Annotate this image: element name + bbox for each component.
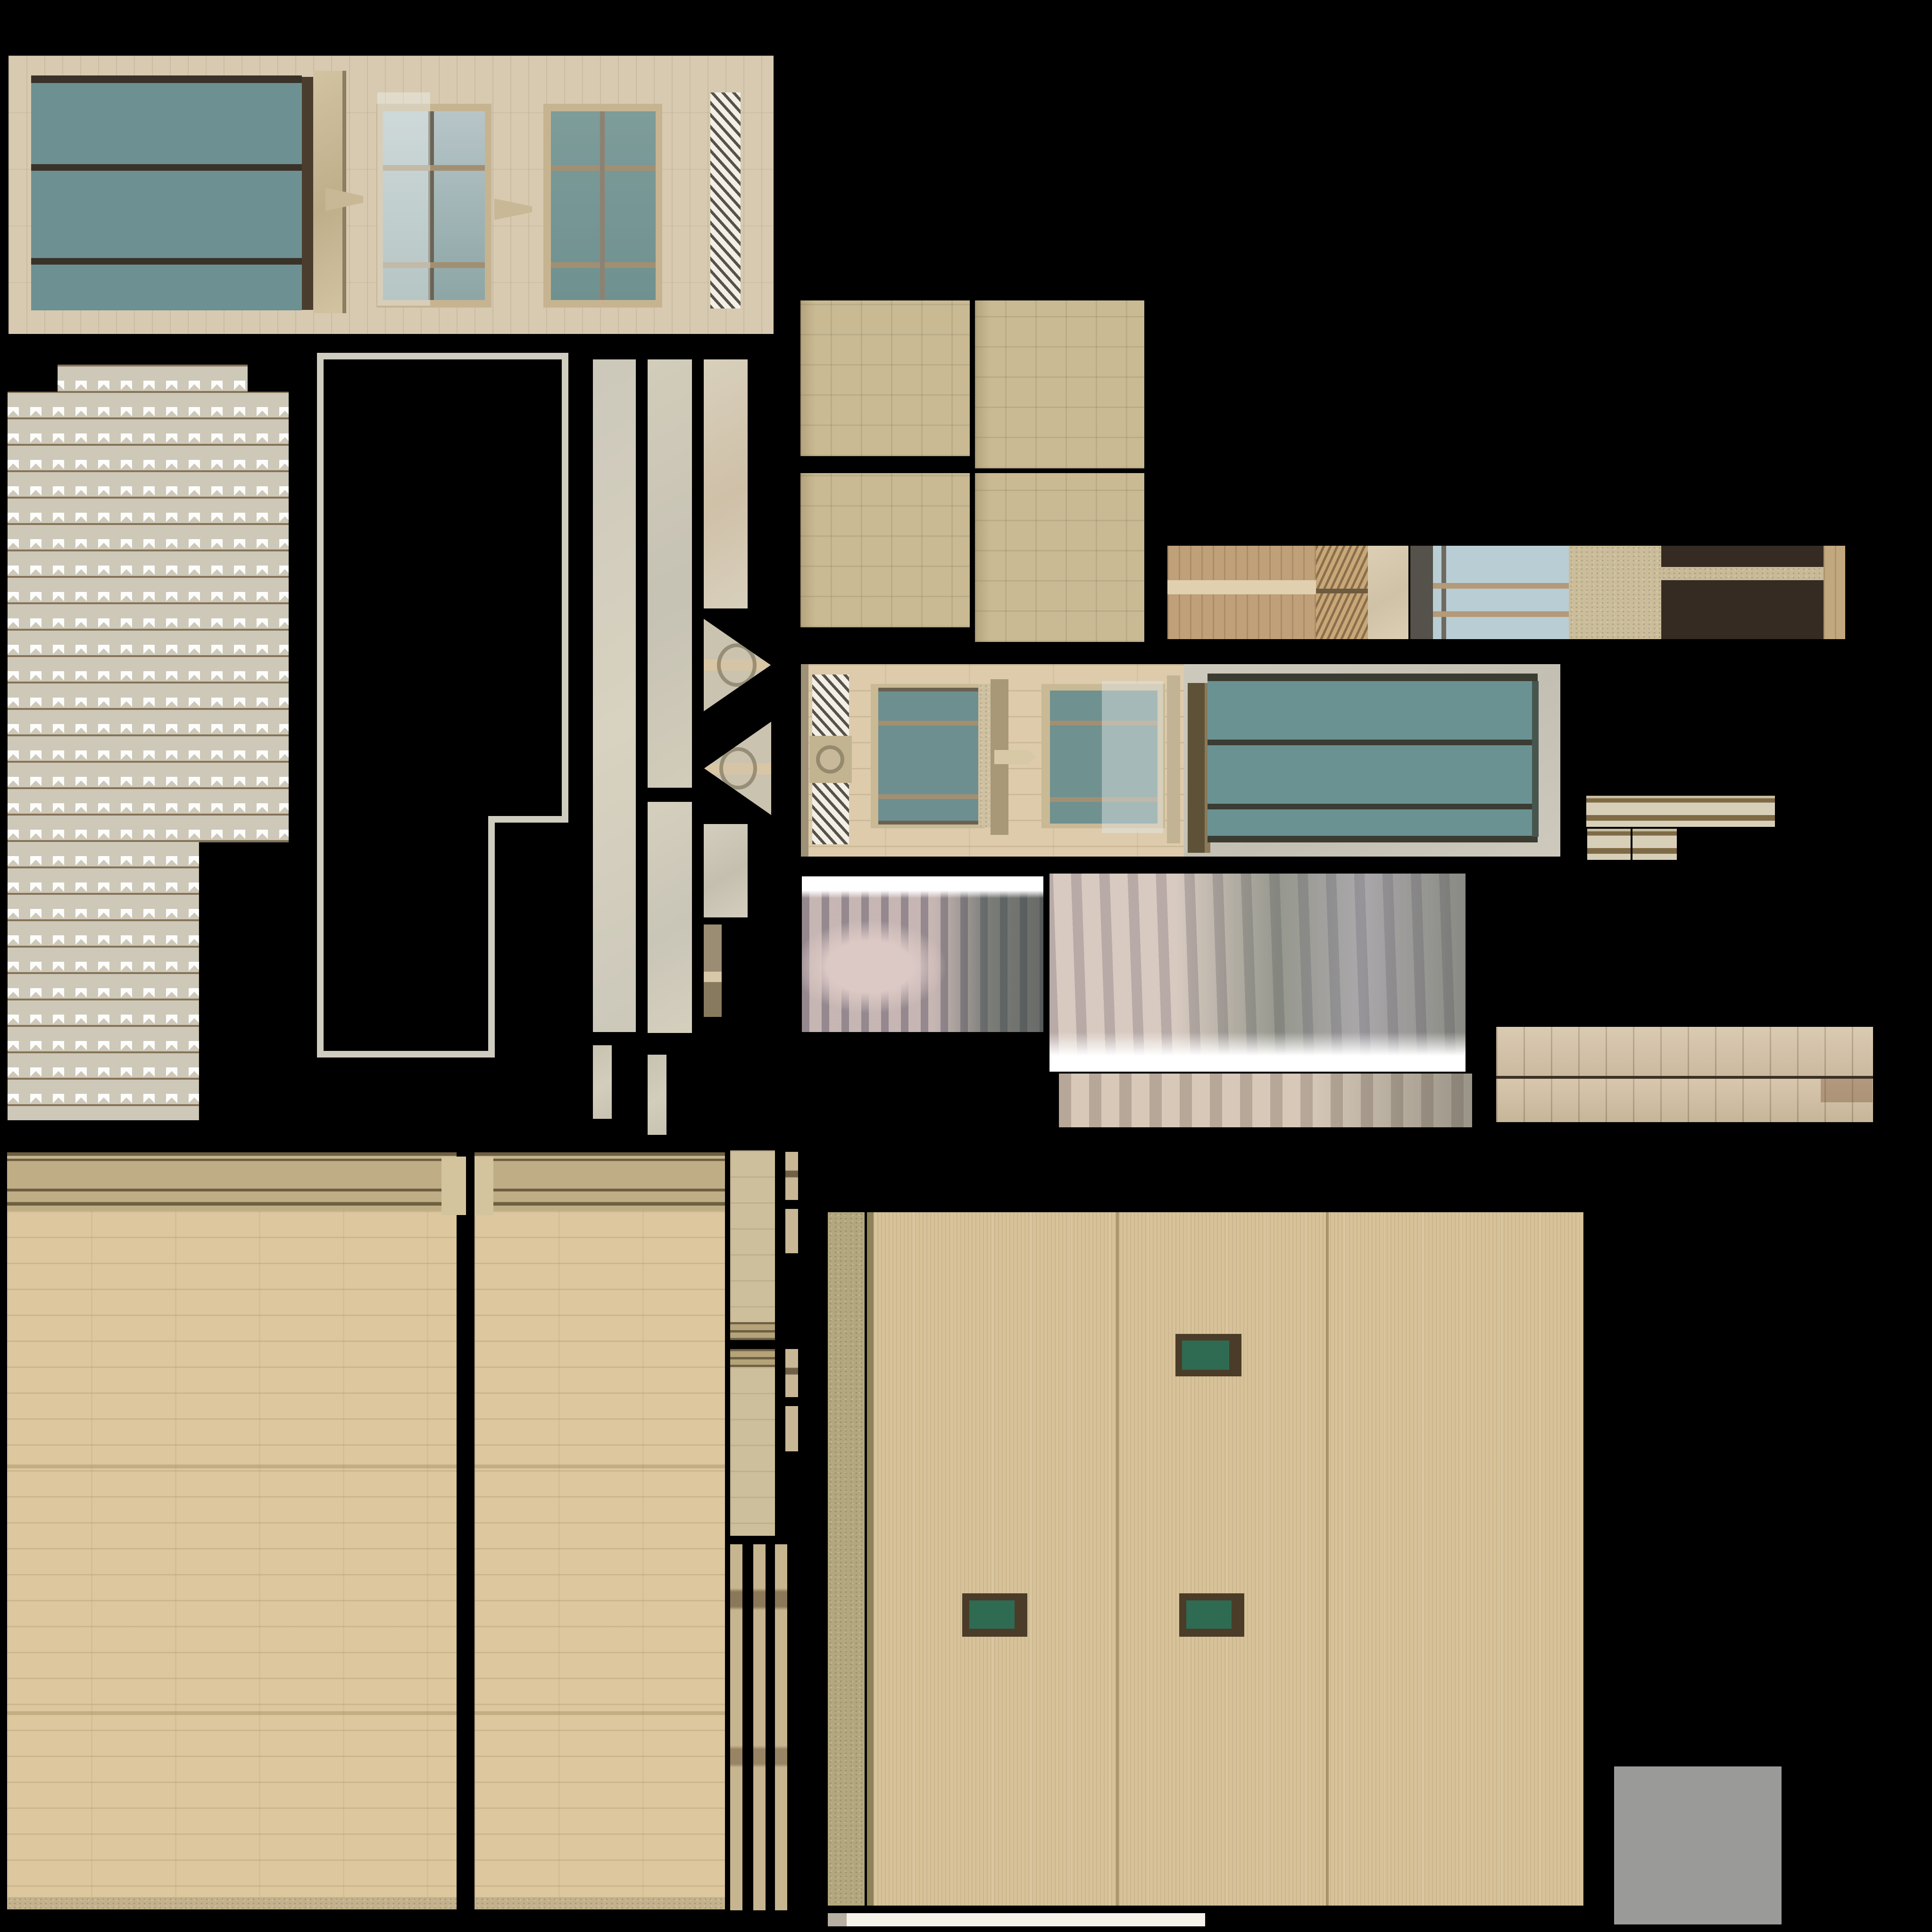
molding-strip-long: [1586, 796, 1775, 827]
facade-b-curtainwall-glass: [1207, 681, 1538, 837]
plank-strip-bottom: [1496, 1079, 1873, 1122]
green-window-1-glass: [1182, 1341, 1229, 1370]
facade-b-curtainwall-right-edge: [1532, 681, 1539, 837]
wall-panel-1-cornice: [7, 1152, 457, 1211]
stone-tile-square-1: [800, 300, 970, 456]
pier-strip-a2: [730, 1367, 775, 1536]
strip-b-dark-frame: [1410, 546, 1433, 639]
strip-b-tan-lightband: [1167, 580, 1316, 594]
facade-b-curtainwall-frame-bottom: [1207, 836, 1538, 842]
facade-b-curtainwall-frame-top: [1207, 674, 1538, 681]
texture-atlas: [0, 0, 1932, 1932]
facade-b-window1-mullion-h1: [878, 721, 978, 725]
trim-strip-a: [593, 359, 636, 1032]
strip-b-corrugated-divider: [1316, 589, 1368, 593]
pediment-triangle-left: [704, 722, 771, 815]
facade-a-curtainwall-glass: [31, 83, 302, 310]
wall-panel-2-pilaster: [475, 1157, 493, 1215]
pediment-medallion: [719, 747, 757, 790]
thin-post-1: [730, 1544, 742, 1910]
facade-b-pier-column: [978, 684, 991, 827]
facade-a-louver-grille: [710, 92, 741, 308]
strip-b-window-glass: [1433, 546, 1569, 639]
strip-b-dark-brown-panel: [1661, 546, 1824, 639]
uv-outline-left: [317, 353, 324, 1058]
wall-panel-1: [7, 1211, 457, 1897]
plank-strip-top: [1496, 1027, 1873, 1076]
trim-brown-block-a: [704, 924, 722, 972]
wall-panel-1-base: [7, 1897, 457, 1909]
facade-a-curtainwall-shadow-edge: [302, 77, 313, 310]
wall-panel-3-vseam-1: [1116, 1212, 1119, 1906]
uv-outline-step-h: [488, 816, 568, 823]
strip-b-right-column: [1824, 546, 1845, 639]
pier-strip-a2-cornice: [730, 1349, 775, 1367]
facade-b-window1-mullion-h2: [878, 794, 978, 799]
pier-tab-b4: [785, 1406, 798, 1451]
pier-tab-b3: [785, 1349, 798, 1397]
green-window-3-glass: [1186, 1600, 1232, 1629]
trim-strip-b-upper: [648, 359, 692, 788]
facade-b-curtainwall-mullion-1: [1207, 740, 1538, 745]
thin-post-3: [775, 1544, 787, 1910]
pediment-triangle-right: [704, 619, 771, 711]
facade-b-louver-medallion: [816, 745, 844, 774]
wall-panel-3-column-gap: [867, 1212, 874, 1906]
facade-b-window1-topline: [878, 688, 978, 691]
facade-a-window2-mullion-vert: [600, 111, 605, 300]
strip-b-light-column: [1368, 546, 1408, 639]
facade-b-window1-botline: [878, 821, 978, 824]
photo-texture-b: [1049, 874, 1466, 1072]
uv-outline-right: [562, 353, 568, 823]
wall-panel-2-seam-2: [475, 1711, 725, 1715]
trim-brown-block-b: [704, 982, 722, 1017]
stone-tile-square-2: [975, 300, 1144, 468]
strip-b-stone-column: [1569, 546, 1661, 639]
wall-panel-1-pilaster: [441, 1157, 466, 1215]
wall-panel-3: [874, 1212, 1583, 1906]
molding-strip-short-a: [1587, 829, 1631, 860]
wall-panel-2-cornice: [475, 1152, 725, 1211]
trim-brown-divider: [704, 972, 722, 982]
facade-a-curtainwall-frame-top: [31, 75, 302, 83]
facade-b-curtainwall-mullion-2: [1207, 804, 1538, 809]
pier-strip-a1: [730, 1150, 775, 1322]
baseboard-gray: [828, 1913, 847, 1926]
facade-a-curtainwall-mullion-upper: [31, 164, 308, 171]
strip-b-beige-crossband: [1661, 567, 1845, 580]
wall-panel-3-column: [828, 1212, 865, 1906]
pier-tab-b1: [785, 1152, 798, 1200]
trim-panel-c-upper: [704, 359, 748, 608]
facade-b-door: [1188, 683, 1205, 853]
photo-texture-c: [1059, 1074, 1472, 1127]
gray-placeholder-square: [1614, 1766, 1782, 1924]
facade-b-left-edge: [801, 664, 808, 857]
green-window-2-glass: [969, 1600, 1015, 1629]
wall-panel-2-base: [475, 1897, 725, 1909]
facade-b-window2-open-casement: [1102, 681, 1163, 833]
trim-panel-c-mid: [704, 824, 748, 917]
strip-b-window-mullion-h2: [1433, 611, 1569, 617]
uv-outline-bottom: [317, 1051, 495, 1058]
photo-texture-a: [802, 876, 1043, 1032]
wall-panel-1-seam-2: [7, 1711, 457, 1715]
molding-strip-short-b: [1632, 829, 1677, 860]
strip-b-window-mullion-h1: [1433, 583, 1569, 589]
wall-panel-2-seam-1: [475, 1465, 725, 1468]
baseboard-white: [847, 1913, 1205, 1926]
uv-outline-top: [317, 353, 568, 359]
wall-panel-3-vseam-2: [1326, 1212, 1329, 1906]
shingle-roof-sheet: [8, 365, 289, 1120]
facade-b-right-pier: [1167, 675, 1180, 843]
stone-tile-square-4: [975, 473, 1144, 642]
facade-b-pier-bracket: [994, 750, 1036, 764]
thin-post-2: [753, 1544, 766, 1910]
trim-strip-a-foot: [593, 1045, 612, 1119]
strip-b-window-mullion-vert: [1441, 546, 1446, 639]
pier-strip-a1-cornice: [730, 1322, 775, 1340]
uv-outline-step-v: [488, 816, 495, 1058]
wall-panel-2: [475, 1211, 725, 1897]
facade-a-curtainwall-mullion-lower: [31, 258, 308, 265]
trim-strip-b-lower: [648, 802, 692, 1033]
trim-strip-b-foot: [648, 1055, 666, 1135]
wall-panel-1-seam-1: [7, 1465, 457, 1468]
pediment-medallion: [717, 643, 757, 687]
stone-tile-square-3: [800, 473, 970, 627]
pier-tab-b2: [785, 1209, 798, 1253]
facade-a-window1-open-casement: [377, 92, 430, 306]
facade-b-window1-glass: [878, 691, 978, 821]
plank-strip-smudge: [1821, 1079, 1873, 1102]
